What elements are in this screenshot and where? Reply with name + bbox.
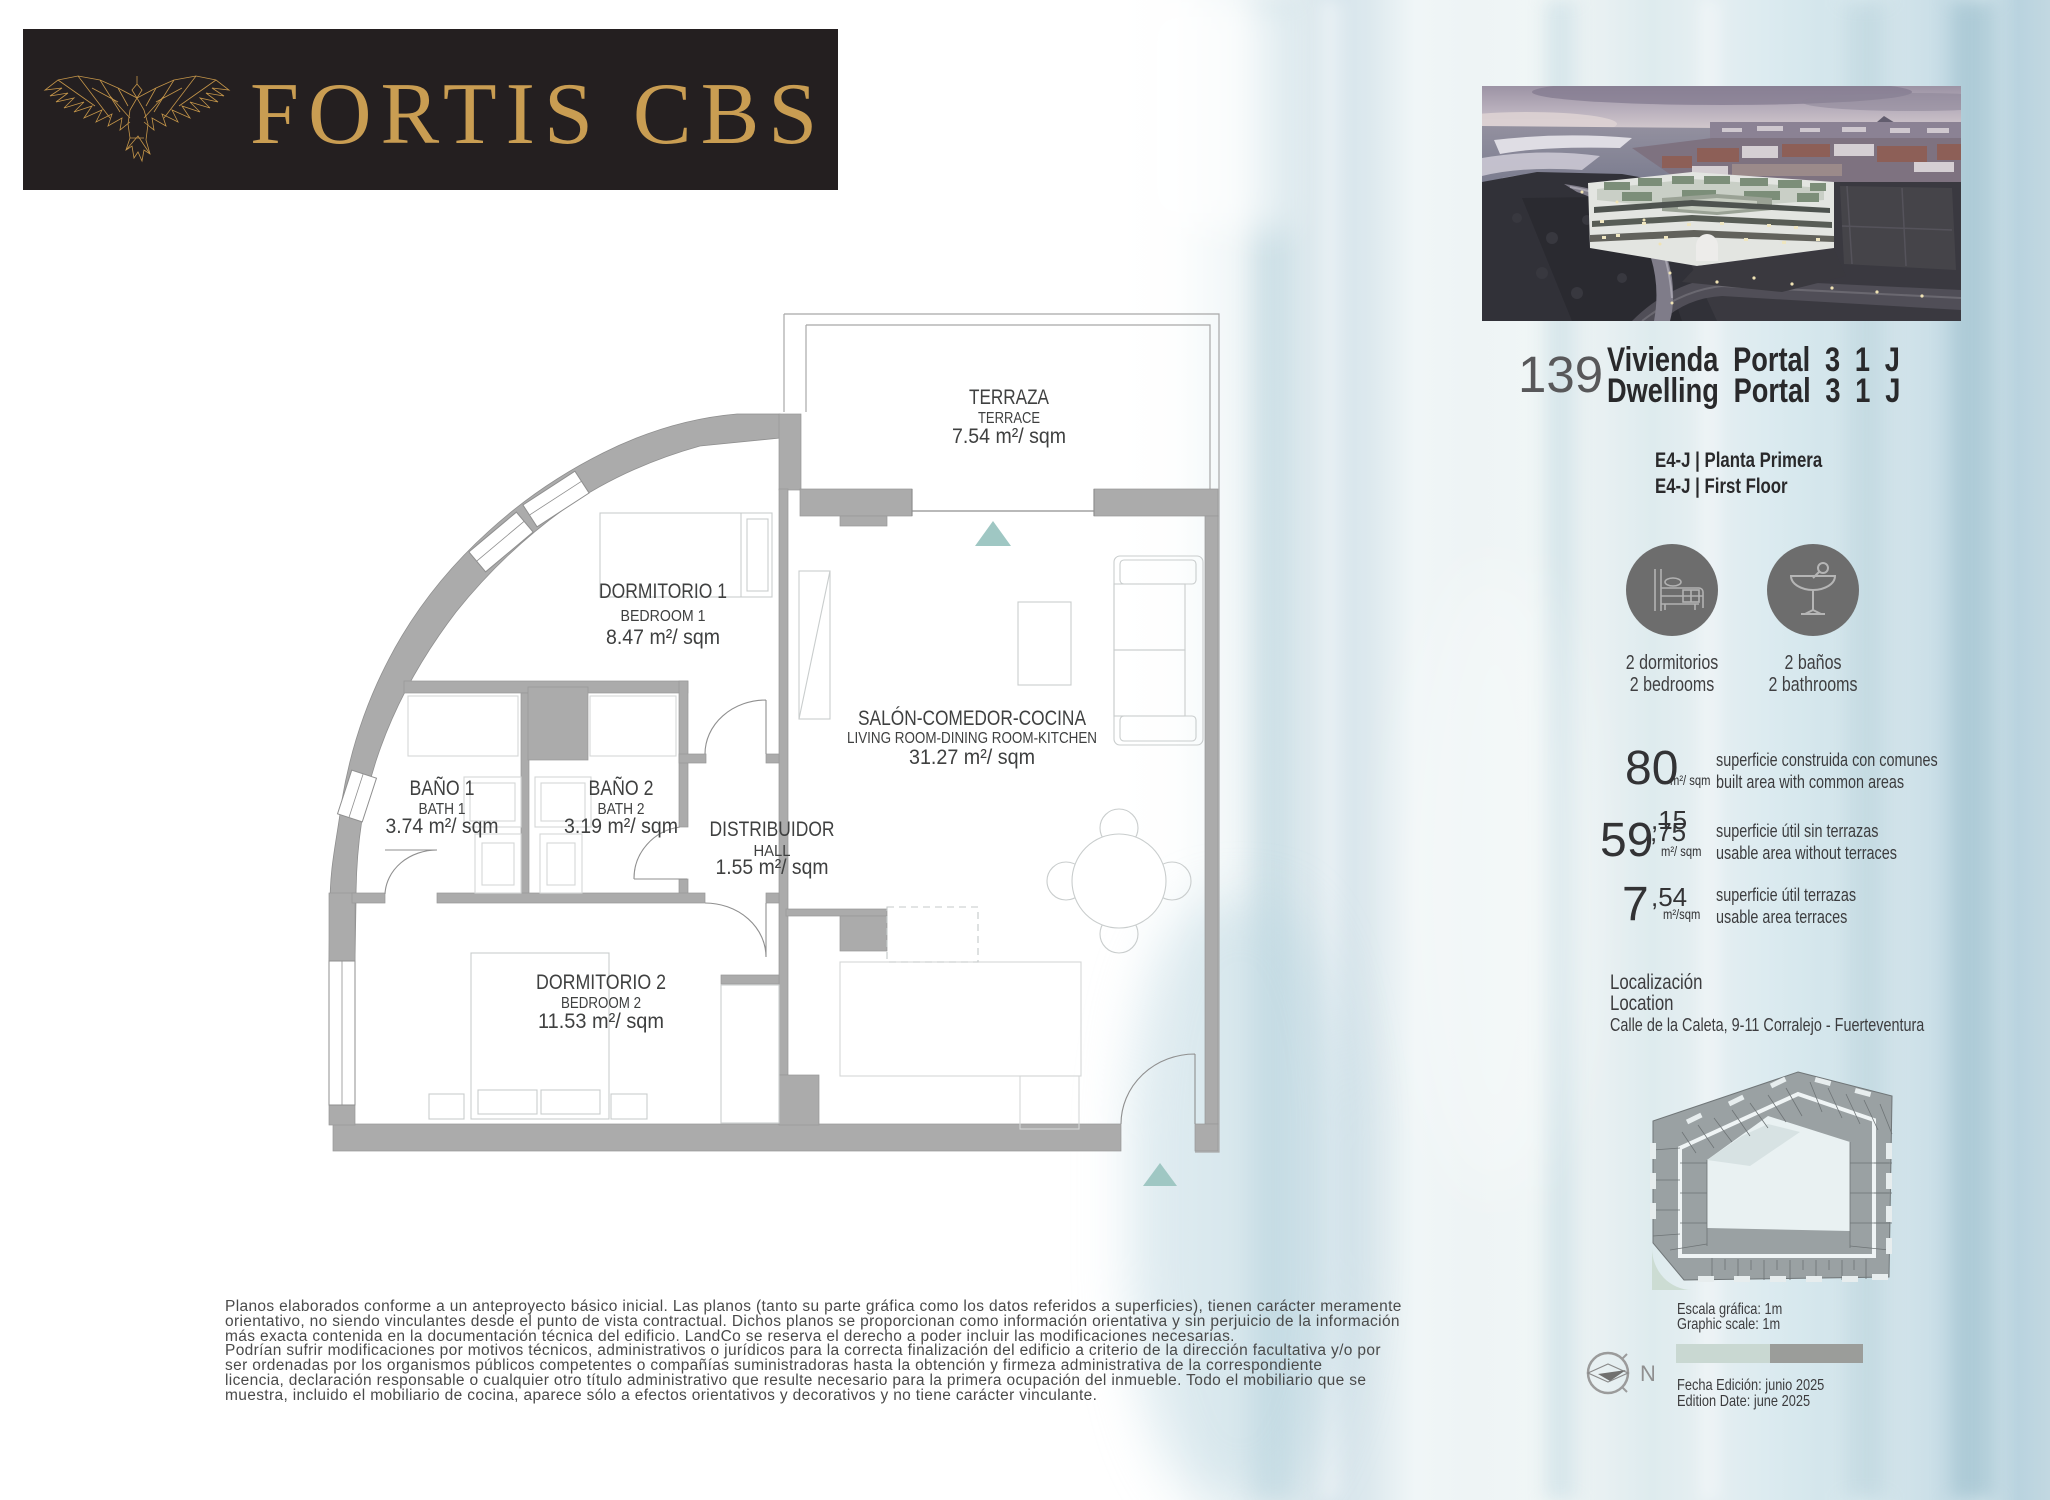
- svg-text:7.54 m²/ sqm: 7.54 m²/ sqm: [952, 425, 1066, 448]
- svg-text:BAÑO 1: BAÑO 1: [410, 776, 475, 800]
- svg-text:TERRAZA: TERRAZA: [969, 386, 1049, 409]
- svg-text:8.47 m²/ sqm: 8.47 m²/ sqm: [606, 626, 720, 649]
- svg-text:3.19 m²/ sqm: 3.19 m²/ sqm: [564, 815, 678, 838]
- svg-text:1.55 m²/ sqm: 1.55 m²/ sqm: [716, 856, 829, 879]
- svg-text:BAÑO 2: BAÑO 2: [589, 776, 654, 800]
- svg-text:SALÓN-COMEDOR-COCINA: SALÓN-COMEDOR-COCINA: [858, 707, 1086, 730]
- svg-text:DISTRIBUIDOR: DISTRIBUIDOR: [710, 818, 835, 841]
- svg-text:BEDROOM 1: BEDROOM 1: [621, 608, 706, 625]
- svg-text:31.27 m²/ sqm: 31.27 m²/ sqm: [909, 746, 1035, 769]
- svg-text:LIVING ROOM-DINING ROOM-KITCHE: LIVING ROOM-DINING ROOM-KITCHEN: [847, 730, 1097, 747]
- svg-text:3.74 m²/ sqm: 3.74 m²/ sqm: [386, 815, 499, 838]
- svg-text:DORMITORIO 1: DORMITORIO 1: [599, 580, 727, 603]
- svg-text:DORMITORIO 2: DORMITORIO 2: [536, 971, 666, 994]
- svg-text:11.53 m²/ sqm: 11.53 m²/ sqm: [538, 1010, 664, 1033]
